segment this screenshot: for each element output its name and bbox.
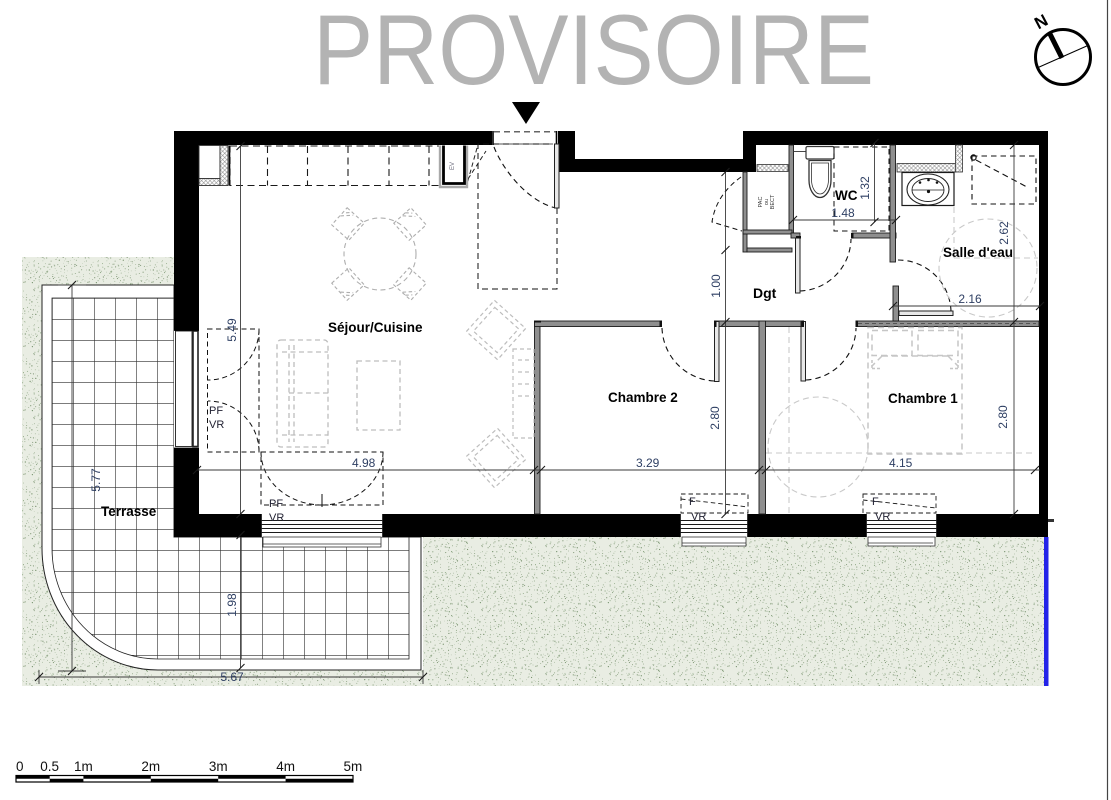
svg-text:1.48: 1.48 — [831, 206, 855, 220]
svg-text:F: F — [872, 496, 879, 508]
svg-text:Terrasse: Terrasse — [101, 504, 157, 519]
svg-text:PF: PF — [269, 498, 283, 510]
svg-text:1.00: 1.00 — [709, 274, 723, 298]
svg-text:4.15: 4.15 — [889, 456, 913, 470]
svg-text:EV: EV — [450, 162, 456, 170]
svg-text:5.49: 5.49 — [225, 318, 239, 342]
svg-text:2.80: 2.80 — [996, 405, 1010, 429]
svg-text:Salle d'eau: Salle d'eau — [943, 245, 1013, 260]
svg-text:2m: 2m — [141, 759, 160, 774]
svg-text:4.98: 4.98 — [352, 456, 376, 470]
svg-text:Chambre 2: Chambre 2 — [608, 390, 678, 405]
svg-text:5.77: 5.77 — [89, 468, 103, 492]
svg-text:WC: WC — [835, 188, 858, 203]
svg-text:2.16: 2.16 — [958, 292, 982, 306]
svg-text:1.98: 1.98 — [225, 593, 239, 617]
svg-text:VR: VR — [875, 511, 890, 523]
svg-text:PF: PF — [209, 405, 223, 417]
svg-text:3.29: 3.29 — [636, 456, 660, 470]
svg-text:0: 0 — [16, 759, 24, 774]
svg-text:5m: 5m — [344, 759, 363, 774]
svg-text:Chambre 1: Chambre 1 — [888, 391, 958, 406]
svg-text:2.62: 2.62 — [997, 221, 1011, 245]
svg-text:5.67: 5.67 — [220, 670, 244, 684]
svg-text:Séjour/Cuisine: Séjour/Cuisine — [328, 320, 423, 335]
svg-text:1m: 1m — [74, 759, 93, 774]
svg-text:F: F — [689, 496, 696, 508]
svg-text:Dgt: Dgt — [753, 285, 777, 301]
svg-text:1.32: 1.32 — [858, 176, 872, 200]
svg-text:VR: VR — [209, 419, 224, 431]
svg-text:PROVISOIRE: PROVISOIRE — [313, 0, 874, 105]
svg-text:2.80: 2.80 — [708, 406, 722, 430]
svg-text:VR: VR — [691, 511, 706, 523]
svg-text:3m: 3m — [209, 759, 228, 774]
svg-text:VR: VR — [269, 512, 284, 524]
svg-text:0.5: 0.5 — [40, 759, 59, 774]
svg-text:4m: 4m — [276, 759, 295, 774]
svg-text:BECT: BECT — [770, 194, 776, 209]
